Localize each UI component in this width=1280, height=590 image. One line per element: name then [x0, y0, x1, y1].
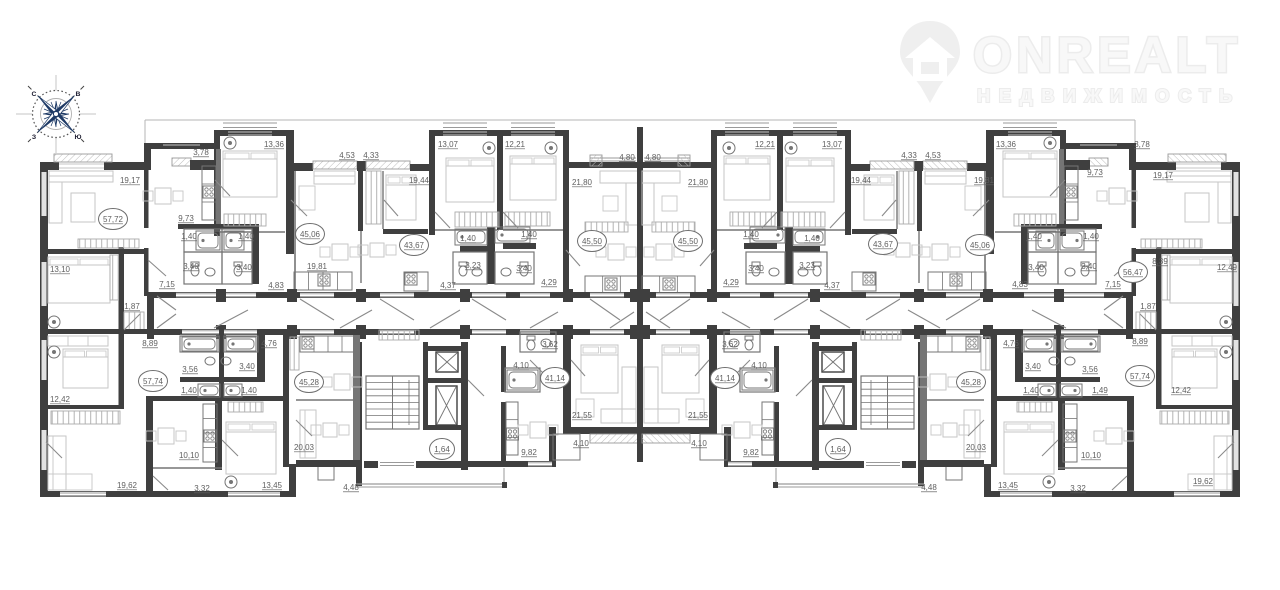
svg-text:43,67: 43,67	[873, 240, 894, 249]
svg-text:3,23: 3,23	[799, 261, 815, 270]
svg-text:1,40: 1,40	[181, 386, 197, 395]
svg-text:4,76: 4,76	[261, 339, 277, 348]
svg-text:4,83: 4,83	[268, 281, 284, 290]
svg-text:1,64: 1,64	[830, 445, 846, 454]
svg-text:1,64: 1,64	[434, 445, 450, 454]
svg-text:1,40: 1,40	[1083, 232, 1099, 241]
svg-text:45,28: 45,28	[299, 378, 320, 387]
svg-text:З: З	[32, 134, 36, 141]
svg-text:13,36: 13,36	[996, 140, 1017, 149]
svg-text:НЕДВИЖИМОСТЬ: НЕДВИЖИМОСТЬ	[977, 85, 1241, 106]
svg-text:4,10: 4,10	[513, 361, 529, 370]
svg-text:19,62: 19,62	[1193, 477, 1214, 486]
svg-text:4,80: 4,80	[645, 153, 661, 162]
svg-text:41,14: 41,14	[545, 374, 566, 383]
svg-text:3,40: 3,40	[1081, 262, 1097, 271]
svg-text:Ю: Ю	[74, 134, 81, 141]
svg-text:1,49: 1,49	[1092, 386, 1108, 395]
svg-text:13,07: 13,07	[438, 140, 459, 149]
svg-text:45,50: 45,50	[678, 237, 699, 246]
svg-text:7,15: 7,15	[1105, 280, 1121, 289]
svg-text:57,74: 57,74	[1130, 372, 1151, 381]
svg-text:57,74: 57,74	[143, 377, 164, 386]
svg-text:3,78: 3,78	[193, 148, 209, 157]
svg-text:3,40: 3,40	[1025, 362, 1041, 371]
svg-text:9,82: 9,82	[521, 448, 537, 457]
svg-text:3,40: 3,40	[516, 264, 532, 273]
svg-text:1,40: 1,40	[521, 230, 537, 239]
svg-text:4,10: 4,10	[573, 439, 589, 448]
svg-text:19,81: 19,81	[307, 262, 328, 271]
svg-text:8,89: 8,89	[142, 339, 158, 348]
svg-text:1,40: 1,40	[181, 232, 197, 241]
svg-text:4,80: 4,80	[619, 153, 635, 162]
svg-text:1,40: 1,40	[804, 234, 820, 243]
svg-text:3,40: 3,40	[1028, 263, 1044, 272]
svg-text:1,40: 1,40	[1023, 386, 1039, 395]
svg-text:4,29: 4,29	[541, 278, 557, 287]
svg-text:1,87: 1,87	[1140, 302, 1156, 311]
svg-text:3,62: 3,62	[722, 340, 738, 349]
svg-text:10,10: 10,10	[1081, 451, 1102, 460]
svg-text:4,37: 4,37	[824, 281, 840, 290]
svg-text:57,72: 57,72	[103, 215, 124, 224]
svg-text:4,10: 4,10	[751, 361, 767, 370]
svg-text:12,21: 12,21	[755, 140, 776, 149]
svg-text:19,62: 19,62	[117, 481, 138, 490]
svg-text:4,48: 4,48	[921, 483, 937, 492]
svg-text:8,89: 8,89	[1132, 337, 1148, 346]
svg-text:4,53: 4,53	[339, 151, 355, 160]
svg-text:3,78: 3,78	[1134, 140, 1150, 149]
svg-text:3,40: 3,40	[239, 362, 255, 371]
svg-text:20,03: 20,03	[966, 443, 987, 452]
svg-text:4,29: 4,29	[723, 278, 739, 287]
svg-text:19,81: 19,81	[974, 176, 995, 185]
svg-text:45,06: 45,06	[970, 241, 991, 250]
svg-text:7,15: 7,15	[159, 280, 175, 289]
svg-text:10,10: 10,10	[179, 451, 200, 460]
svg-text:21,80: 21,80	[688, 178, 709, 187]
svg-text:19,17: 19,17	[1153, 171, 1174, 180]
svg-text:8,39: 8,39	[1152, 257, 1168, 266]
svg-text:45,28: 45,28	[961, 378, 982, 387]
svg-text:1,40: 1,40	[460, 234, 476, 243]
svg-text:1,40: 1,40	[1026, 232, 1042, 241]
svg-text:13,07: 13,07	[822, 140, 843, 149]
svg-text:43,67: 43,67	[404, 241, 425, 250]
svg-text:3,40: 3,40	[236, 263, 252, 272]
svg-text:ONREALT: ONREALT	[973, 27, 1242, 83]
svg-text:13,36: 13,36	[264, 140, 285, 149]
svg-text:1,40: 1,40	[238, 232, 254, 241]
svg-text:13,45: 13,45	[998, 481, 1019, 490]
svg-text:4,48: 4,48	[343, 483, 359, 492]
svg-text:3,56: 3,56	[182, 365, 198, 374]
svg-text:12,42: 12,42	[1171, 386, 1192, 395]
svg-text:4,33: 4,33	[901, 151, 917, 160]
svg-text:41,14: 41,14	[715, 374, 736, 383]
svg-text:9,73: 9,73	[178, 214, 194, 223]
svg-text:21,55: 21,55	[572, 411, 593, 420]
svg-text:4,37: 4,37	[440, 281, 456, 290]
svg-text:3,40: 3,40	[183, 262, 199, 271]
svg-text:9,73: 9,73	[1087, 168, 1103, 177]
svg-text:1,87: 1,87	[124, 302, 140, 311]
svg-text:13,10: 13,10	[50, 265, 71, 274]
svg-text:21,80: 21,80	[572, 178, 593, 187]
svg-text:12,42: 12,42	[50, 395, 71, 404]
svg-text:45,06: 45,06	[300, 230, 321, 239]
svg-text:56,47: 56,47	[1123, 268, 1144, 277]
svg-text:3,23: 3,23	[465, 261, 481, 270]
svg-text:9,82: 9,82	[743, 448, 759, 457]
svg-text:В: В	[76, 91, 81, 98]
svg-text:19,44: 19,44	[851, 176, 872, 185]
svg-text:4,53: 4,53	[925, 151, 941, 160]
svg-text:4,83: 4,83	[1012, 280, 1028, 289]
svg-text:12,49: 12,49	[1217, 263, 1238, 272]
svg-text:21,55: 21,55	[688, 411, 709, 420]
svg-text:12,21: 12,21	[505, 140, 526, 149]
svg-text:3,32: 3,32	[1070, 484, 1086, 493]
svg-text:19,44: 19,44	[409, 176, 430, 185]
svg-text:3,32: 3,32	[194, 484, 210, 493]
svg-text:3,40: 3,40	[748, 264, 764, 273]
svg-text:1,40: 1,40	[743, 230, 759, 239]
svg-text:4,33: 4,33	[363, 151, 379, 160]
svg-text:4,10: 4,10	[691, 439, 707, 448]
svg-text:19,17: 19,17	[120, 176, 141, 185]
svg-text:13,45: 13,45	[262, 481, 283, 490]
svg-text:1,40: 1,40	[241, 386, 257, 395]
svg-text:3,56: 3,56	[1082, 365, 1098, 374]
svg-text:С: С	[32, 91, 37, 98]
svg-text:3,62: 3,62	[542, 340, 558, 349]
svg-text:4,76: 4,76	[1003, 339, 1019, 348]
svg-text:20,03: 20,03	[294, 443, 315, 452]
svg-text:45,50: 45,50	[582, 237, 603, 246]
